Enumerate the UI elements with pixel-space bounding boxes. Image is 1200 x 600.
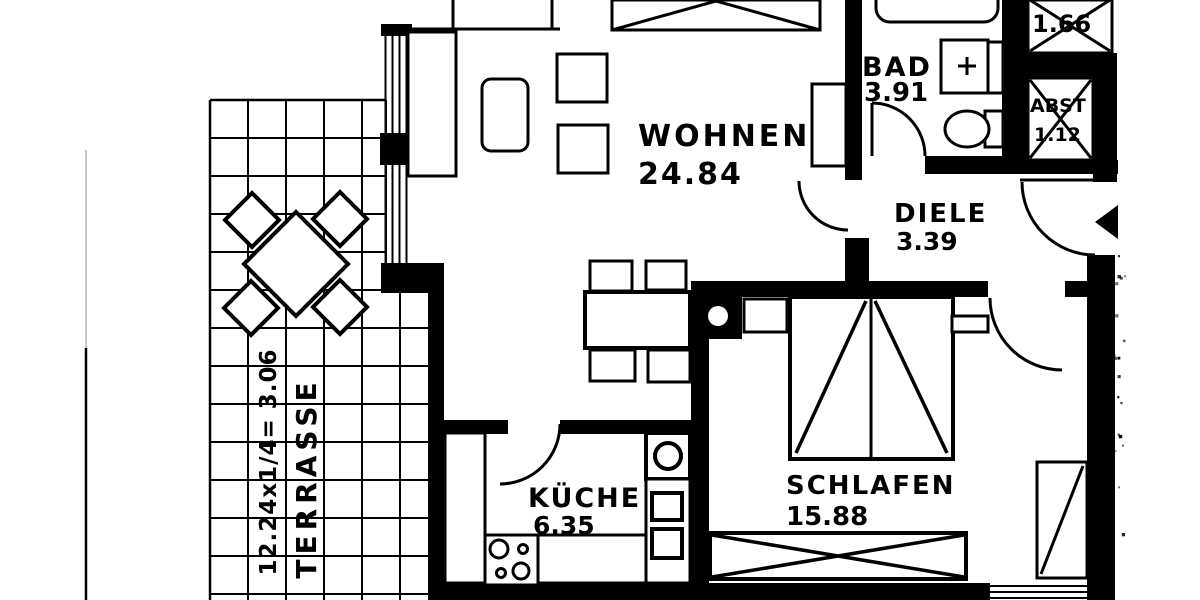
- door-arc-entrance: [1022, 182, 1095, 255]
- wall-window-corner-block: [381, 263, 444, 293]
- room-label-bad: BAD 3.91: [862, 52, 932, 108]
- door-arc-kueche: [500, 424, 560, 484]
- room-area: 3.39: [896, 227, 958, 256]
- wall-kueche-bottom: [428, 583, 709, 600]
- nightstand: [952, 316, 988, 332]
- sideboard-crossed: [612, 0, 820, 30]
- wall-schlafen-bottom: [700, 583, 990, 600]
- terrace: 12.24x1/4= 3.06 TERRASSE: [210, 100, 428, 600]
- abst-room-area: 1.12: [1034, 124, 1081, 146]
- wall-bad-right: [1002, 0, 1028, 174]
- dining-chair: [648, 350, 690, 382]
- kitchen-counter-left: [445, 433, 485, 583]
- schlafen-furniture: [710, 297, 1087, 579]
- room-name: SCHLAFEN: [786, 471, 956, 501]
- floor-plan-page: 12.24x1/4= 3.06 TERRASSE: [0, 0, 1200, 600]
- room-area: 15.88: [786, 502, 868, 532]
- dining-chair: [590, 350, 635, 381]
- wall-kueche-schlafen: [691, 281, 709, 600]
- shower: [941, 40, 1003, 93]
- armchair: [482, 79, 528, 151]
- shaft-box: 1.66: [1028, 0, 1112, 53]
- door-arc-bad: [872, 103, 925, 156]
- wall-entry-jamb: [1093, 160, 1117, 182]
- door-arc-schlafen: [990, 298, 1062, 370]
- room-name: KÜCHE: [528, 481, 641, 514]
- wall-diele-left: [845, 238, 869, 297]
- bathtub: [876, 0, 998, 22]
- kitchen-appliance-column: [646, 479, 690, 583]
- duct-circle: [708, 306, 728, 326]
- room-area: 3.91: [864, 78, 928, 108]
- radiator: [812, 84, 846, 166]
- kitchen-sink: [646, 433, 690, 479]
- window-schlafen-south: [988, 586, 1087, 598]
- room-name: WOHNEN: [638, 119, 810, 154]
- floor-plan-svg: 12.24x1/4= 3.06 TERRASSE: [0, 0, 1200, 600]
- room-name: DIELE: [894, 199, 987, 229]
- wall-wohnen-bad: [845, 0, 862, 180]
- room-label-kueche: KÜCHE 6.35: [528, 481, 641, 540]
- shaft-area: 1.66: [1032, 10, 1091, 38]
- room-label-wohnen: WOHNEN 24.84: [638, 119, 810, 192]
- room-label-schlafen: SCHLAFEN 15.88: [786, 471, 956, 532]
- wall-kueche-left: [428, 288, 444, 600]
- side-table: [558, 125, 608, 173]
- nightstand: [744, 299, 787, 332]
- kitchen-stove: [485, 535, 538, 585]
- terrace-dimension: 12.24x1/4= 3.06: [256, 348, 282, 575]
- wall-bad-bottom: [925, 156, 1005, 174]
- side-table: [557, 54, 607, 102]
- room-label-diele: DIELE 3.39: [894, 199, 987, 256]
- dining-chair: [646, 261, 686, 290]
- entrance-arrow-icon: [1095, 205, 1118, 239]
- dining-table: [585, 292, 690, 348]
- wall-right-upper: [1093, 53, 1117, 174]
- wall-right-lower: [1087, 255, 1115, 600]
- abst-box: ABST 1.12: [1028, 78, 1093, 160]
- sofa: [408, 32, 456, 176]
- toilet: [945, 111, 1003, 147]
- dining-chair: [590, 261, 632, 291]
- abst-room-name: ABST: [1030, 95, 1086, 117]
- door-arc-wohnen-diele: [799, 181, 848, 230]
- built-in-closet: [1037, 462, 1087, 578]
- terrace-room-name: TERRASSE: [290, 377, 323, 578]
- wall-top-thin: [400, 0, 560, 29]
- room-area: 6.35: [533, 511, 595, 540]
- room-area: 24.84: [638, 157, 743, 192]
- wardrobe-crossed: [710, 533, 966, 579]
- kitchen-counter-bottom: [538, 535, 646, 583]
